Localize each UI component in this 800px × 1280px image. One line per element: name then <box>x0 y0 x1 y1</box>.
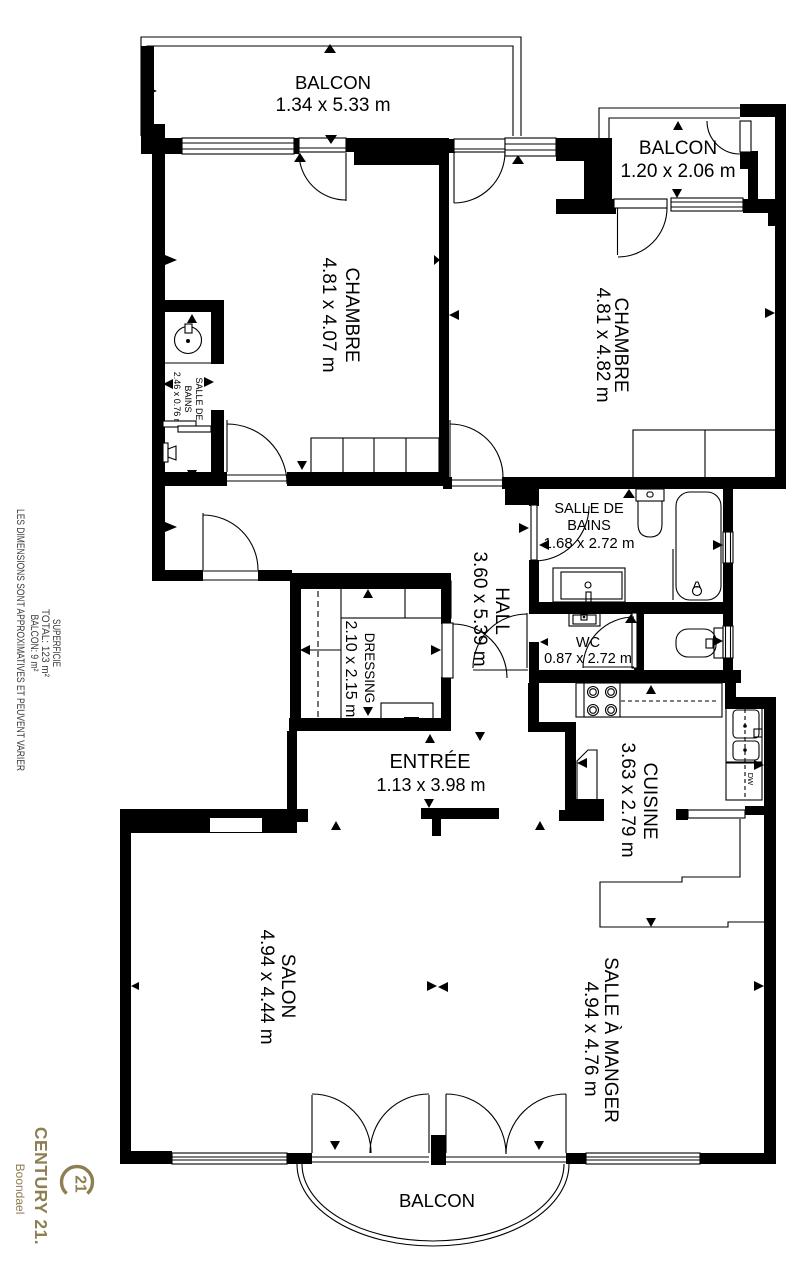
svg-text:BAINS: BAINS <box>183 385 193 412</box>
svg-text:3.60 x 5.39 m: 3.60 x 5.39 m <box>469 551 490 666</box>
svg-text:SALLE DE: SALLE DE <box>554 501 624 517</box>
svg-text:1.68 x 2.72 m: 1.68 x 2.72 m <box>544 535 635 552</box>
svg-text:CENTURY 21.: CENTURY 21. <box>31 1127 51 1245</box>
svg-text:DW: DW <box>746 773 755 786</box>
svg-text:1.34 x 5.33 m: 1.34 x 5.33 m <box>275 95 390 116</box>
svg-text:CUISINE: CUISINE <box>639 762 660 839</box>
svg-text:SALLE DE: SALLE DE <box>194 377 204 420</box>
svg-text:BALCON: BALCON <box>639 138 717 159</box>
svg-text:ENTRÉE: ENTRÉE <box>389 750 470 773</box>
svg-text:1.20 x 2.06 m: 1.20 x 2.06 m <box>620 161 735 182</box>
svg-text:4.94 x 4.76 m: 4.94 x 4.76 m <box>580 981 601 1096</box>
svg-text:4.94 x 4.44 m: 4.94 x 4.44 m <box>256 929 277 1044</box>
svg-text:1.13 x 3.98 m: 1.13 x 3.98 m <box>376 775 485 795</box>
svg-text:SALON: SALON <box>277 954 298 1018</box>
svg-text:WC: WC <box>576 635 600 651</box>
svg-text:0.87 x 2.72 m: 0.87 x 2.72 m <box>544 651 632 667</box>
svg-text:Boondael: Boondael <box>13 1164 27 1215</box>
svg-text:3.63 x 2.79 m: 3.63 x 2.79 m <box>617 742 638 857</box>
svg-text:4.81 x 4.82 m: 4.81 x 4.82 m <box>592 287 613 402</box>
svg-text:4.81 x 4.07 m: 4.81 x 4.07 m <box>318 257 339 372</box>
svg-text:BALCON: BALCON <box>399 1190 475 1211</box>
svg-text:CHAMBRE: CHAMBRE <box>341 267 362 362</box>
svg-text:BAINS: BAINS <box>567 518 611 534</box>
svg-text:2.46 x 0.76 m: 2.46 x 0.76 m <box>172 372 182 427</box>
svg-text:HALL: HALL <box>491 587 512 635</box>
svg-text:BALCON: 9 m²: BALCON: 9 m² <box>28 615 40 672</box>
svg-text:DRESSING: DRESSING <box>362 633 377 704</box>
svg-text:21: 21 <box>72 1175 89 1193</box>
svg-text:SALLE À MANGER: SALLE À MANGER <box>600 957 621 1123</box>
svg-text:BALCON: BALCON <box>295 72 371 93</box>
svg-text:LES DIMENSIONS SONT APPROXIMAT: LES DIMENSIONS SONT APPROXIMATIVES ET PE… <box>14 509 26 771</box>
svg-text:2.10 x 2.15 m: 2.10 x 2.15 m <box>342 621 359 718</box>
